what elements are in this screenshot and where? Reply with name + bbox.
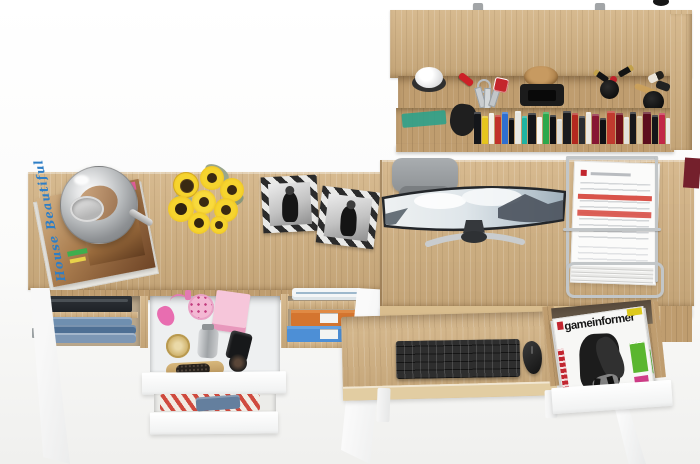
cover-green-callout (629, 341, 648, 373)
cover-yellow-tab (627, 307, 643, 316)
product-photo-desk-set: House Beautiful (0, 0, 700, 464)
monitor-base-center (461, 231, 487, 243)
game-magazine-masthead: gameinformer (564, 311, 636, 333)
right-desk: gameinformer (0, 0, 700, 464)
keyboard (396, 339, 521, 379)
document-tray (560, 154, 668, 296)
right-desk-leg (610, 406, 646, 464)
tray-wire-middle (563, 228, 661, 231)
cover-issue-box-red (557, 321, 564, 330)
maroon-book-edge (683, 157, 700, 188)
tray-leg-stub-left (376, 388, 390, 422)
invoice-logo-red (581, 170, 587, 176)
mouse-scroll-wheel (531, 346, 533, 354)
invoice-title-line (591, 172, 631, 176)
tray-front-lip (343, 381, 557, 401)
right-desk-side-panel (660, 306, 692, 342)
tray-wire-front-frame (566, 262, 664, 298)
tray-wire-back (566, 156, 658, 159)
curved-monitor (380, 174, 568, 252)
